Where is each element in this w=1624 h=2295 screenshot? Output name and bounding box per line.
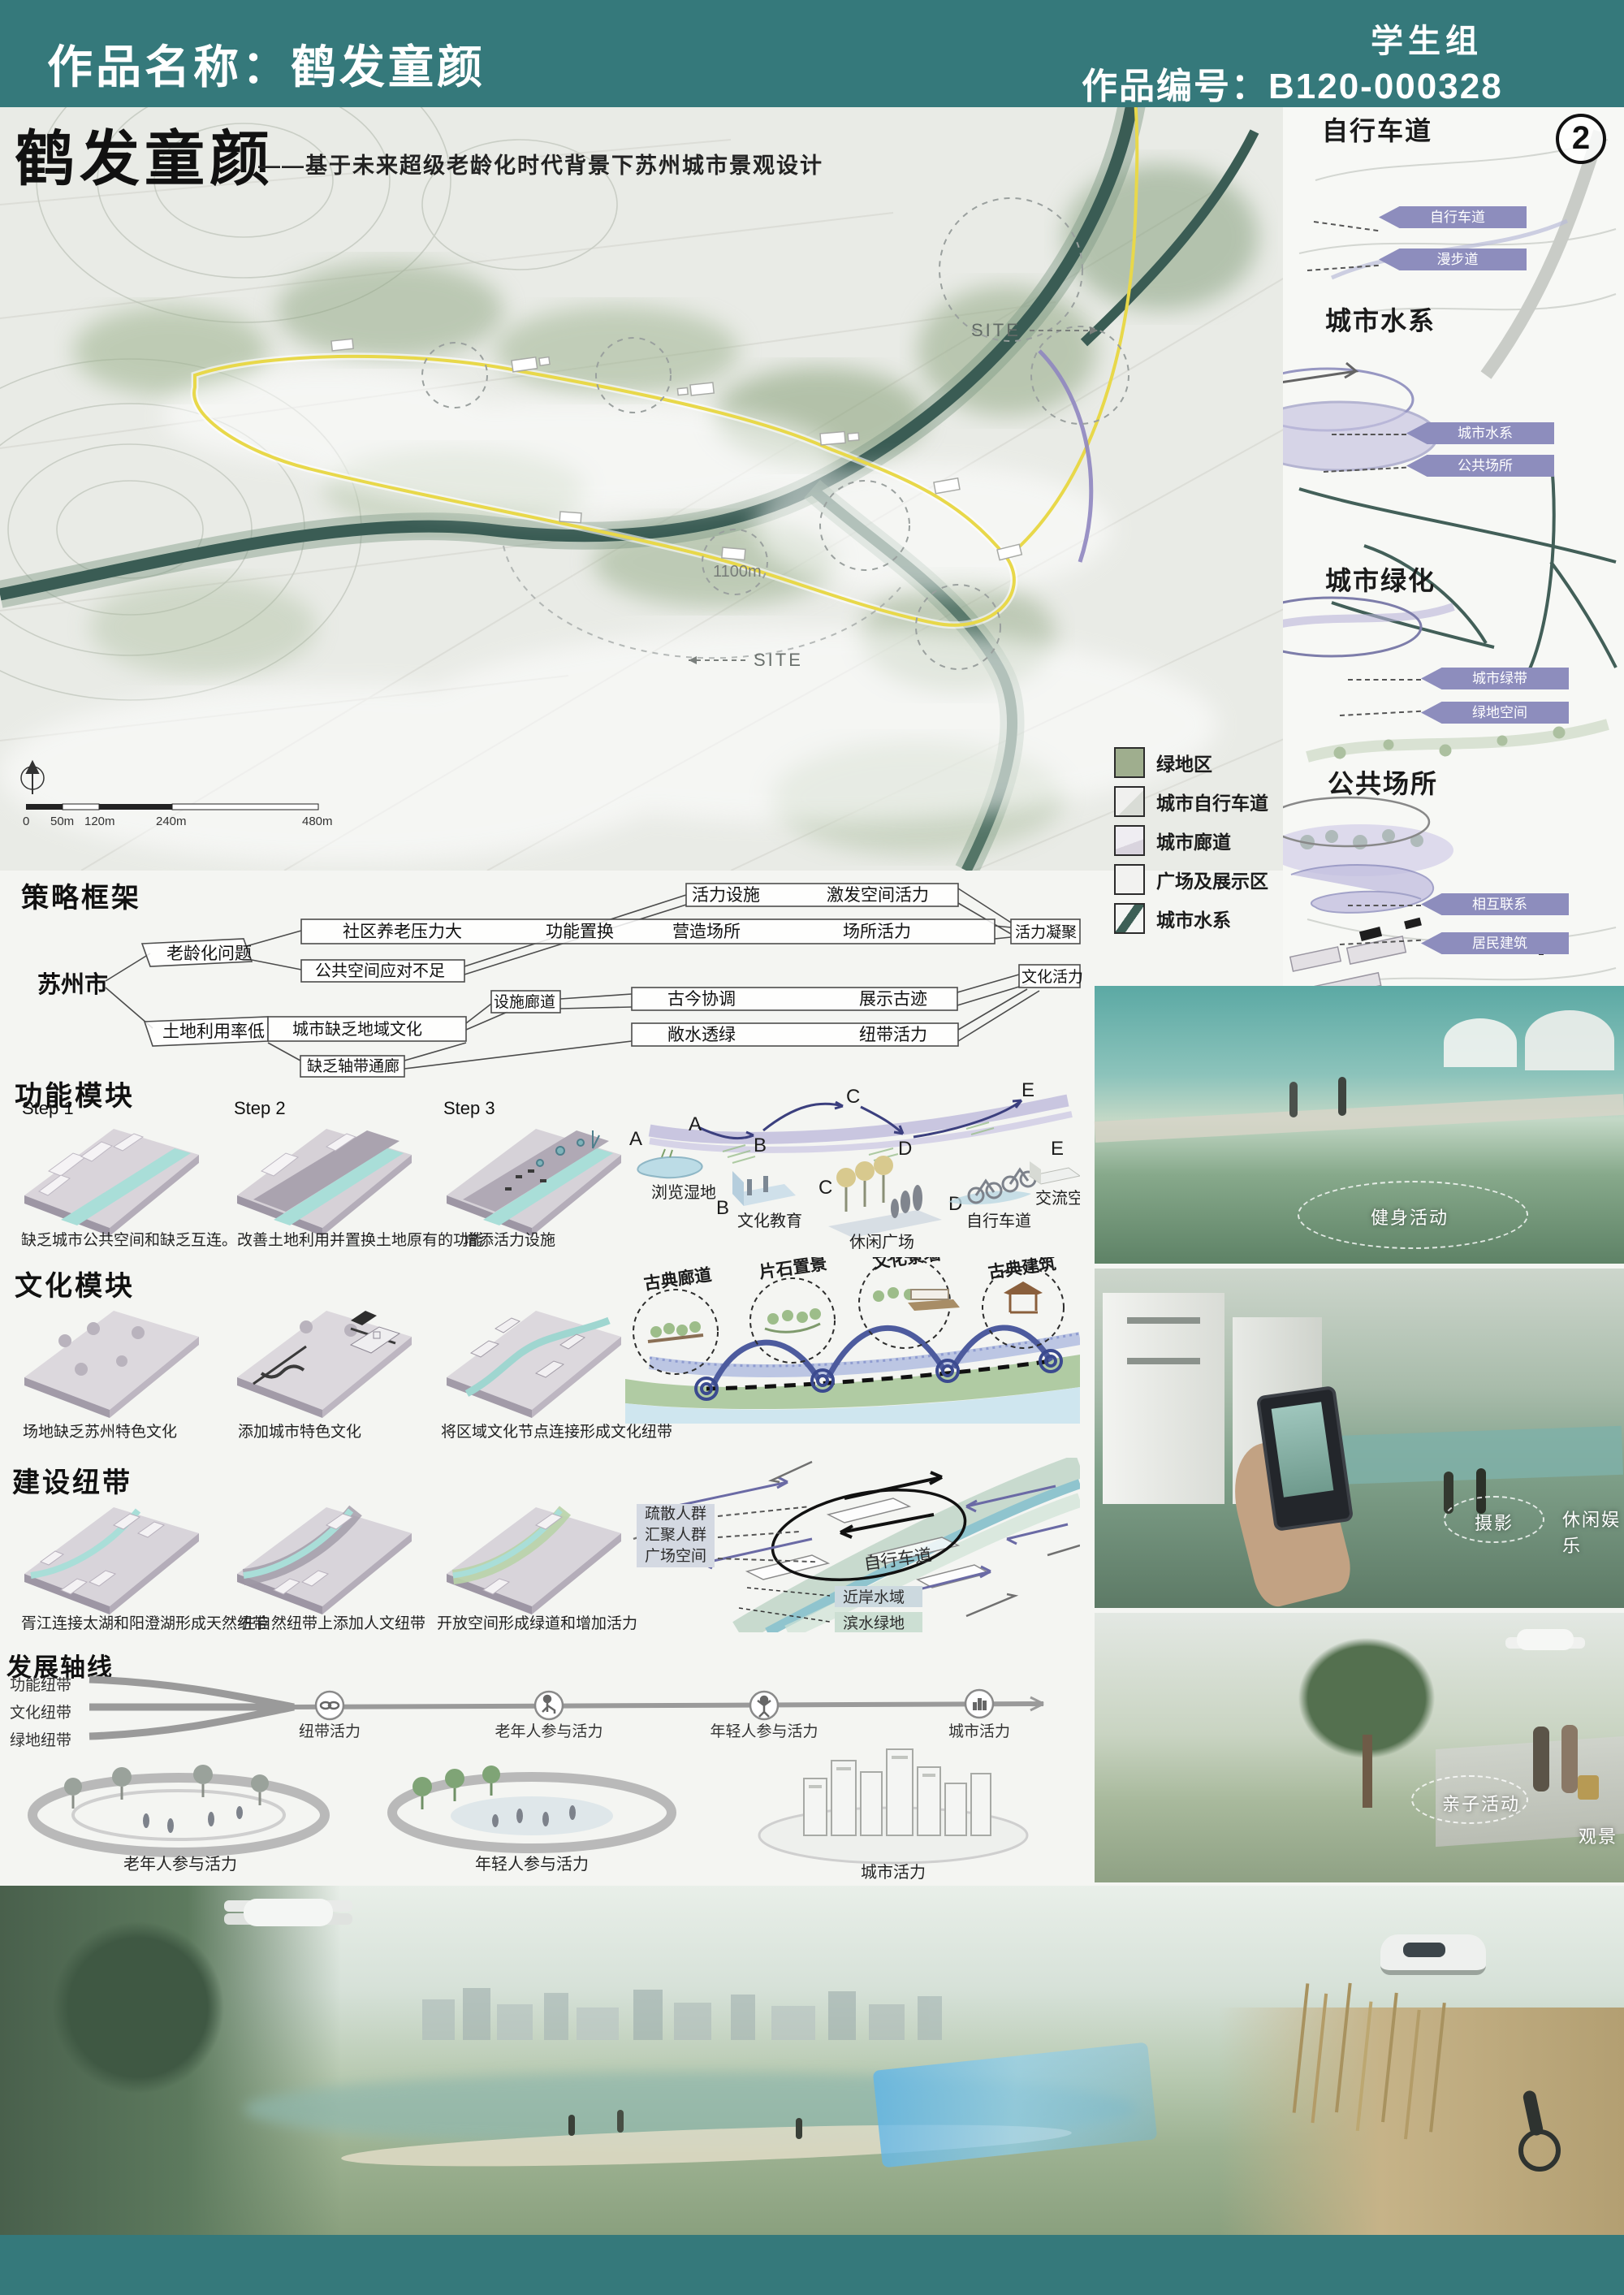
flow-vitality-gather: 活力凝聚: [1015, 923, 1077, 941]
work-name-label: 作品名称：鹤发童颜: [47, 31, 486, 97]
flow-branch-aging: 老龄化问题: [166, 944, 252, 963]
legend-swatch-green: [1114, 747, 1145, 778]
vignette-key-c: C: [818, 1177, 832, 1199]
culture-axon-2: [237, 1311, 412, 1418]
legend-swatch-water: [1114, 903, 1145, 934]
vignette-culture: B 文化教育: [716, 1171, 802, 1230]
panel-title-green: 城市绿化: [1325, 560, 1436, 598]
wheelchair-wheel: [1518, 2129, 1561, 2172]
distance-label: 1100m: [713, 563, 762, 581]
vignette-label-c: 休闲广场: [849, 1233, 914, 1251]
panel-title-water: 城市水系: [1325, 300, 1436, 338]
park-visitor: [617, 2110, 624, 2133]
legend-item-corridor: 城市廊道: [1114, 825, 1268, 856]
building-window-band: [1127, 1317, 1200, 1324]
header-bar: 作品名称：鹤发童颜 学生组 作品编号：B120-000328: [0, 0, 1624, 107]
disperse-crowd-tag: 疏散人群: [637, 1504, 715, 1525]
milestone-elder: 老年人参与活力: [495, 1722, 603, 1740]
scale-tick: 480m: [302, 815, 333, 828]
tag-water-system: 城市水系: [1406, 422, 1554, 444]
site-label-1: SITE: [971, 320, 1021, 340]
tag-leader-line: [1348, 679, 1421, 681]
drone-large: [244, 1899, 333, 1926]
site-label-2: SITE: [754, 650, 803, 670]
node-key-b: B: [754, 1135, 767, 1156]
legend-label: 城市自行车道: [1156, 788, 1268, 815]
park-visitor: [568, 2115, 575, 2136]
culture-belt-diagram: 古典廊道 片石置景 文化景墙 古典建筑: [625, 1257, 1080, 1424]
legend-label: 城市水系: [1156, 905, 1231, 932]
flow-elder-pressure: 社区养老压力大: [343, 923, 462, 941]
gather-crowd-tag: 汇聚人群: [637, 1525, 715, 1546]
ring-caption-youth: 年轻人参与活力: [475, 1855, 589, 1874]
tag-stroll-path: 漫步道: [1379, 249, 1527, 270]
step-axon: [447, 1129, 621, 1236]
waterfront-green-label: 滨水绿地: [843, 1614, 905, 1632]
ring-caption-city: 城市活力: [861, 1863, 926, 1882]
flow-lack-culture: 城市缺乏地域文化: [292, 1020, 422, 1039]
flow-public-space-short: 公共空间应对不足: [315, 962, 445, 980]
analysis-maps-art: [1283, 107, 1624, 1010]
function-step-diagrams: [16, 1114, 633, 1236]
culture-axon-3: [447, 1311, 621, 1418]
feature-building-label: 古典建筑: [987, 1257, 1057, 1282]
culture-step-diagrams: [16, 1296, 633, 1418]
city-skyline-band: [422, 1983, 991, 2040]
vignette-label-a: 浏览湿地: [651, 1183, 716, 1202]
flow-place-vitality: 场所活力: [843, 923, 911, 941]
tag-green-belt: 城市绿带: [1421, 668, 1569, 689]
culture-axon-1: [24, 1311, 199, 1418]
tag-residence: 居民建筑: [1421, 932, 1569, 954]
render-photo-street: 亲子活动 观景: [1095, 1613, 1624, 1882]
culture-caption-2: 添加城市特色文化: [238, 1420, 361, 1441]
legend-item-plaza: 广场及展示区: [1114, 864, 1268, 895]
analysis-panel-column: 自行车道 城市水系 城市绿化 公共场所 自行车道 漫步道 城市水系 公共场所 城…: [1283, 107, 1624, 1010]
vignette-label-e: 交流空间: [1035, 1189, 1080, 1208]
belt-axon-2: [237, 1507, 412, 1614]
flow-facility-corridor: 设施廊道: [494, 993, 555, 1011]
tag-leader-line: [1348, 905, 1421, 906]
flow-show-heritage: 展示古迹: [859, 990, 927, 1009]
render-photo-fitness: 健身活动: [1095, 986, 1624, 1264]
building-window-band: [1127, 1358, 1200, 1364]
competition-poster: SITE SITE 1100m 0 50m 120m 240m 480m: [0, 0, 1624, 2295]
node-key-c: C: [846, 1086, 860, 1108]
flow-branch-landuse: 土地利用率低: [162, 1022, 265, 1041]
scale-tick: 240m: [156, 815, 187, 828]
culture-feature-labels: 古典廊道 片石置景 文化景墙 古典建筑: [642, 1257, 1057, 1294]
belt-caption-2: 在自然纽带上添加人文纽带: [240, 1611, 425, 1633]
tag-bike-lane: 自行车道: [1379, 206, 1527, 228]
footer-bar: 2020 第七届 紫金奖·建筑及环境设计大赛 The 7th "Zijin Aw…: [0, 2235, 1624, 2295]
ring-caption-elderly: 老年人参与活力: [123, 1855, 237, 1874]
flying-car-window: [1403, 1943, 1445, 1957]
flow-open-water: 敞水透绿: [667, 1026, 736, 1044]
tree-trunk: [1363, 1735, 1372, 1808]
panorama-render: [0, 1886, 1624, 2235]
tag-leader-line: [1332, 434, 1406, 435]
legend-item-water: 城市水系: [1114, 903, 1268, 934]
scale-tick: 120m: [84, 815, 115, 828]
poster-title: 鹤发童颜: [15, 110, 274, 197]
vignette-plaza: C 休闲广场: [818, 1156, 942, 1251]
white-building: [1103, 1293, 1224, 1504]
park-visitor: [796, 2118, 802, 2139]
milestone-youth: 年轻人参与活力: [710, 1722, 818, 1740]
strategy-flowchart: 苏州市 老龄化问题 土地利用率低 活力设施 激发空间活力 社区养老压力大 功能置…: [0, 869, 1088, 1084]
person-silhouette: [1338, 1077, 1346, 1116]
dome-structure: [1525, 1010, 1614, 1070]
poster-subtitle: ——基于未来超级老龄化时代背景下苏州城市景观设计: [258, 148, 823, 179]
vignette-bike: D 自行车道: [948, 1169, 1035, 1230]
bridge-deck: [1095, 1094, 1624, 1143]
step3-caption: 增添活力设施: [463, 1228, 555, 1250]
flow-function-swap: 功能置换: [546, 923, 614, 941]
function-corridor-diagram: A B C D E A 浏览湿地 B 文化教育 C 休闲广场: [625, 1080, 1080, 1251]
node-key-e: E: [1021, 1080, 1034, 1101]
legend-label: 城市廊道: [1156, 827, 1231, 854]
legend-swatch-corridor: [1114, 825, 1145, 856]
flow-root: 苏州市: [37, 970, 108, 998]
culture-caption-1: 场地缺乏苏州特色文化: [23, 1420, 177, 1441]
step2-caption: 改善土地利用并置换土地原有的功能: [237, 1228, 484, 1250]
step-axon: [24, 1129, 199, 1236]
vignette-label-b: 文化教育: [737, 1212, 802, 1230]
group-label: 学生组: [1371, 15, 1483, 62]
milestone-city: 城市活力: [948, 1722, 1010, 1740]
vignette-label-d: 自行车道: [966, 1212, 1031, 1230]
node-key-a: A: [689, 1113, 702, 1135]
fitness-label: 健身活动: [1371, 1204, 1449, 1230]
reeds-right: [1218, 2008, 1624, 2235]
vignette-key-a: A: [629, 1128, 642, 1150]
milestone-belt: 纽带活力: [299, 1722, 361, 1740]
legend-item-green: 绿地区: [1114, 747, 1268, 778]
drone: [1517, 1629, 1574, 1650]
flow-belt-vitality: 纽带活力: [859, 1026, 927, 1044]
milestone-labels: 纽带活力 老年人参与活力 年轻人参与活力 城市活力: [299, 1722, 1010, 1740]
family-activity-label: 亲子活动: [1442, 1790, 1520, 1816]
vignette-key-b: B: [716, 1197, 729, 1219]
belt-caption-1: 胥江连接太湖和阳澄湖形成天然纽带: [21, 1611, 268, 1633]
flow-boxes: 苏州市 老龄化问题 土地利用率低 活力设施 激发空间活力 社区养老压力大 功能置…: [37, 884, 1083, 1077]
tag-public-place: 公共场所: [1406, 455, 1554, 477]
vignette-key-d: D: [948, 1193, 962, 1215]
tag-green-space: 绿地空间: [1421, 702, 1569, 724]
sheet-number-badge: 2: [1556, 114, 1606, 164]
dome-structure: [1444, 1018, 1517, 1067]
render-photo-canal: 摄影 休闲娱乐: [1095, 1269, 1624, 1608]
step-axon: [237, 1129, 412, 1236]
plaza-space-tag: 广场空间: [637, 1546, 715, 1567]
leisure-label: 休闲娱乐: [1562, 1506, 1624, 1558]
panel-title-plaza: 公共场所: [1328, 763, 1438, 801]
city-cluster-diagram: [759, 1749, 1027, 1863]
youth-ring-diagram: [392, 1766, 672, 1848]
shopping-bag: [1578, 1775, 1599, 1800]
map-legend: 绿地区 城市自行车道 城市廊道 广场及展示区 城市水系: [1114, 747, 1268, 934]
vignette-exchange: E 交流空间: [1030, 1138, 1080, 1208]
flow-lack-axis: 缺乏轴带通廊: [307, 1057, 400, 1075]
legend-label: 绿地区: [1156, 749, 1212, 776]
development-axis-diagram: 纽带活力 老年人参与活力 年轻人参与活力 城市活力: [0, 1665, 1080, 1884]
vignette-key-e: E: [1051, 1138, 1064, 1160]
belt-caption-3: 开放空间形成绿道和增加活力: [437, 1611, 637, 1633]
step1-caption: 缺乏城市公共空间和缺乏互连。: [21, 1228, 237, 1250]
elderly-ring-diagram: [32, 1765, 325, 1852]
flow-culture-vitality: 文化活力: [1021, 968, 1083, 986]
legend-label: 广场及展示区: [1156, 866, 1268, 893]
nearshore-label: 近岸水域: [843, 1588, 905, 1606]
flow-spark-vitality: 激发空间活力: [827, 886, 929, 905]
legend-swatch-bike: [1114, 786, 1145, 817]
node-key-d: D: [898, 1138, 912, 1160]
holographic-screen: [873, 2042, 1158, 2168]
scale-tick: 50m: [50, 815, 74, 828]
forest-canopy: [49, 1918, 227, 2097]
elderly-person: [1533, 1727, 1549, 1791]
legend-swatch-plaza: [1114, 864, 1145, 895]
scale-tick: 0: [23, 815, 29, 828]
ring-captions: 老年人参与活力 年轻人参与活力 城市活力: [123, 1855, 926, 1882]
legend-item-bike: 城市自行车道: [1114, 786, 1268, 817]
tag-connection: 相互联系: [1421, 893, 1569, 915]
flow-ancient-modern: 古今协调: [667, 990, 736, 1009]
belt-step-diagrams: [16, 1493, 633, 1614]
belt-axon-3: [447, 1507, 621, 1614]
belt-axon-1: [24, 1507, 199, 1614]
entry-code: 作品编号：B120-000328: [1082, 57, 1503, 109]
flow-vitality-facility: 活力设施: [692, 886, 760, 905]
panel-title-bike: 自行车道: [1322, 110, 1432, 148]
flow-place-making: 营造场所: [672, 923, 741, 941]
person-silhouette: [1289, 1082, 1298, 1117]
elderly-person: [1561, 1725, 1578, 1793]
viewing-label: 观景: [1579, 1822, 1618, 1848]
photography-label: 摄影: [1475, 1509, 1514, 1535]
strategy-heading: 策略框架: [21, 875, 141, 915]
